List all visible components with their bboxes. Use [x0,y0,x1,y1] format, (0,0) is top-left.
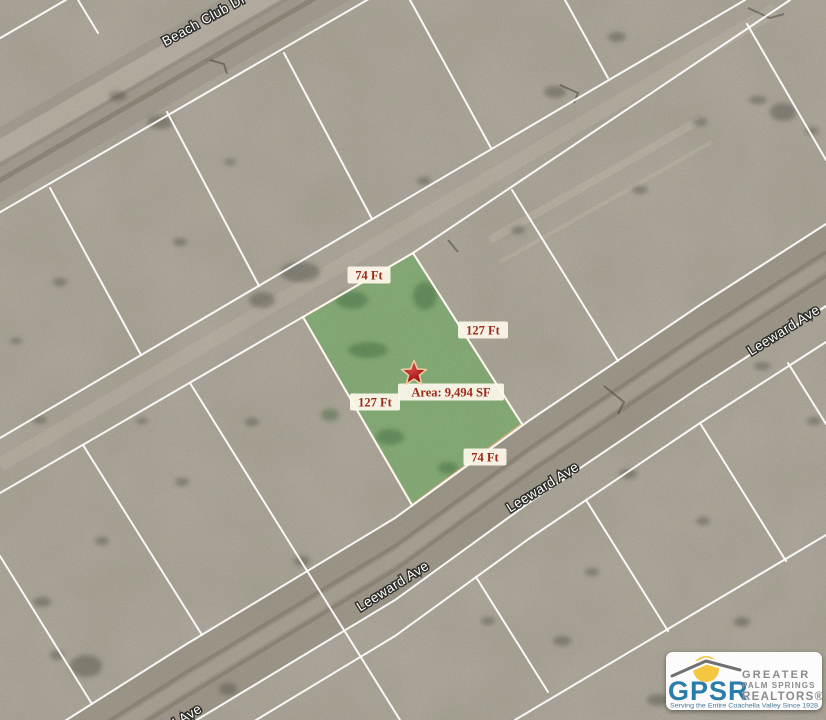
dim-label-bottom: 74 Ft [464,449,507,466]
svg-text:127 Ft: 127 Ft [358,396,393,410]
area-label: Area: 9,494 SF [398,384,504,401]
svg-text:127 Ft: 127 Ft [466,324,501,338]
logo-name-line2: PALM SPRINGS [742,681,816,690]
satellite-map[interactable]: Beach Club Dr Leeward Ave Leeward Ave Le… [0,0,826,720]
dim-label-top: 74 Ft [348,267,391,284]
svg-text:74 Ft: 74 Ft [355,269,383,283]
svg-text:Area: 9,494 SF: Area: 9,494 SF [411,386,491,400]
map-canvas: Beach Club Dr Leeward Ave Leeward Ave Le… [0,0,826,720]
brand-logo: GPSR GREATER PALM SPRINGS REALTORS® Serv… [666,652,824,710]
logo-abbr: GPSR [668,676,749,706]
logo-name-line3: REALTORS® [742,691,824,703]
svg-text:74 Ft: 74 Ft [471,451,499,465]
logo-name-line1: GREATER [742,669,810,681]
dim-label-left: 127 Ft [350,394,400,411]
grain-overlay [0,0,826,720]
logo-tagline: Serving the Entire Coachella Valley Sinc… [670,703,818,710]
dim-label-right: 127 Ft [458,322,508,339]
